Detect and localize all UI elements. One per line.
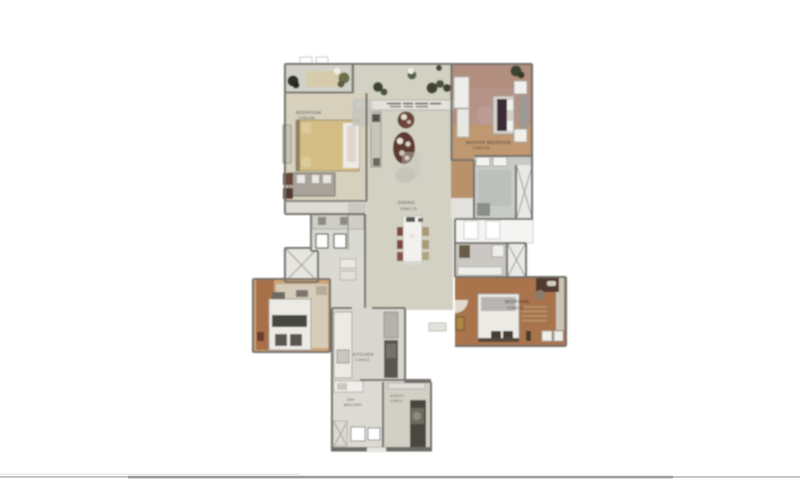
svg-text:DINING: DINING — [398, 200, 416, 205]
svg-text:BEDROOM: BEDROOM — [296, 110, 321, 115]
svg-text:2.44x3.0: 2.44x3.0 — [355, 358, 370, 362]
svg-text:DRY: DRY — [347, 398, 355, 402]
svg-text:3.66x2.75: 3.66x2.75 — [400, 207, 417, 211]
svg-text:BEDROOM: BEDROOM — [505, 299, 529, 304]
svg-text:1.2x2.1: 1.2x2.1 — [390, 399, 402, 403]
svg-text:MASTER BEDROOM: MASTER BEDROOM — [466, 140, 511, 145]
svg-text:3.66x3.05: 3.66x3.05 — [473, 146, 490, 150]
svg-text:BALCONY: BALCONY — [344, 403, 363, 407]
svg-text:KITCHEN: KITCHEN — [353, 352, 374, 357]
svg-text:3.05x3.35: 3.05x3.35 — [507, 306, 524, 310]
svg-text:UTILITY: UTILITY — [390, 394, 405, 398]
svg-text:3.05x3.66: 3.05x3.66 — [298, 116, 315, 120]
